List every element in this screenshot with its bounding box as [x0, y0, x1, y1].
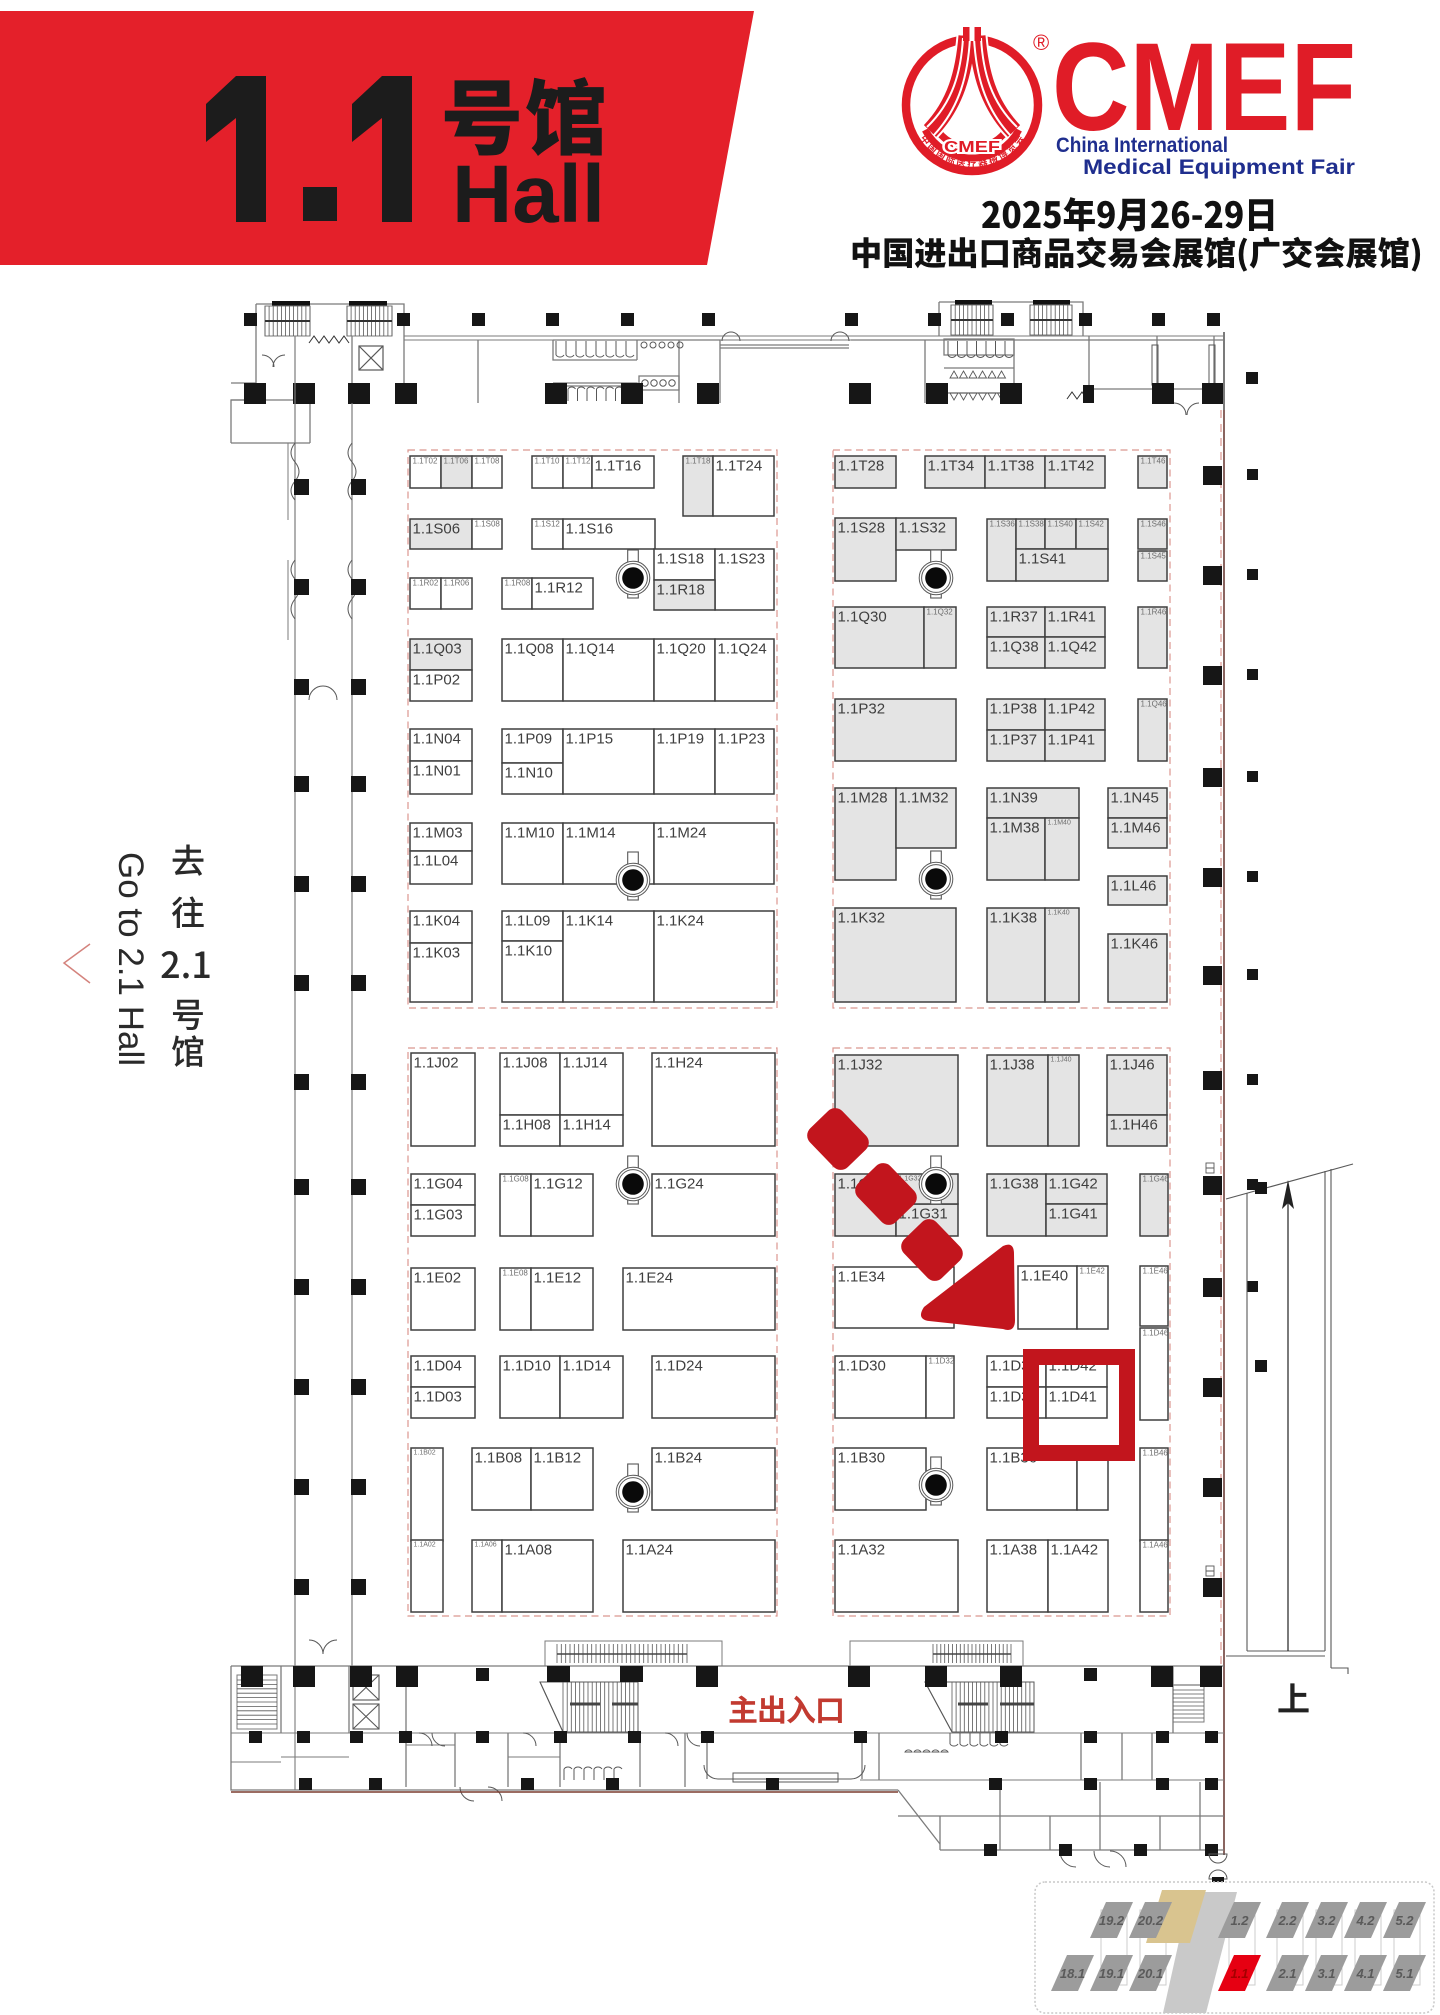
svg-text:1.1A08: 1.1A08 [505, 1541, 553, 1558]
svg-text:1.1G42: 1.1G42 [1049, 1175, 1098, 1192]
svg-text:1.1L04: 1.1L04 [413, 852, 459, 869]
svg-text:1.1P15: 1.1P15 [566, 730, 614, 747]
svg-text:1.1K04: 1.1K04 [413, 912, 461, 929]
svg-text:1.1J32: 1.1J32 [838, 1056, 883, 1073]
svg-text:1.1A02: 1.1A02 [414, 1542, 436, 1549]
svg-text:1.1T08: 1.1T08 [475, 457, 500, 466]
svg-text:1.1: 1.1 [1230, 1966, 1248, 1981]
svg-text:1.1B46: 1.1B46 [1143, 1449, 1169, 1458]
svg-text:1.1B30: 1.1B30 [838, 1449, 886, 1466]
svg-text:1.1M28: 1.1M28 [838, 789, 888, 806]
svg-text:1.1E34: 1.1E34 [838, 1268, 886, 1285]
svg-text:1.1R06: 1.1R06 [444, 579, 470, 588]
svg-text:1.1R37: 1.1R37 [990, 608, 1038, 625]
svg-text:1.1T42: 1.1T42 [1048, 457, 1095, 474]
svg-text:1.1Q46: 1.1Q46 [1141, 700, 1168, 709]
svg-text:1.1Q24: 1.1Q24 [718, 640, 767, 657]
svg-text:1.1P38: 1.1P38 [990, 700, 1038, 717]
svg-text:1.1S45: 1.1S45 [1141, 552, 1167, 561]
svg-text:1.1M32: 1.1M32 [899, 789, 949, 806]
svg-text:1.1G08: 1.1G08 [503, 1175, 530, 1184]
svg-text:1.1T38: 1.1T38 [988, 457, 1035, 474]
svg-text:1.1M38: 1.1M38 [990, 819, 1040, 836]
svg-text:1.1D41: 1.1D41 [1049, 1388, 1097, 1405]
svg-text:1.1A32: 1.1A32 [838, 1541, 886, 1558]
svg-text:1.1J46: 1.1J46 [1110, 1056, 1155, 1073]
svg-text:1.1K32: 1.1K32 [838, 909, 886, 926]
svg-text:1.1D24: 1.1D24 [655, 1357, 703, 1374]
svg-text:1.1K46: 1.1K46 [1111, 935, 1159, 952]
svg-text:19.2: 19.2 [1099, 1913, 1125, 1928]
svg-text:1.1H24: 1.1H24 [655, 1054, 703, 1071]
svg-text:1.1Q38: 1.1Q38 [990, 638, 1039, 655]
svg-text:18.1: 18.1 [1060, 1966, 1085, 1981]
svg-text:1.1A06: 1.1A06 [475, 1542, 497, 1549]
svg-text:1.1S41: 1.1S41 [1019, 550, 1067, 567]
svg-text:4.1: 4.1 [1355, 1966, 1374, 1981]
svg-text:1.1Q08: 1.1Q08 [505, 640, 554, 657]
svg-text:20.1: 20.1 [1137, 1966, 1163, 1981]
svg-text:1.1T16: 1.1T16 [595, 457, 642, 474]
svg-text:5.1: 5.1 [1395, 1966, 1413, 1981]
svg-text:Go to 2.1 Hall: Go to 2.1 Hall [111, 852, 150, 1066]
svg-text:1.1E24: 1.1E24 [626, 1269, 674, 1286]
svg-text:1.1K24: 1.1K24 [657, 912, 705, 929]
svg-text:1.1M10: 1.1M10 [505, 824, 555, 841]
svg-text:1.1K14: 1.1K14 [566, 912, 614, 929]
svg-text:1.1K10: 1.1K10 [505, 942, 553, 959]
svg-text:1.1H14: 1.1H14 [563, 1116, 611, 1133]
svg-text:Medical Equipment Fair: Medical Equipment Fair [1083, 156, 1355, 179]
svg-text:1.1S16: 1.1S16 [566, 520, 614, 537]
svg-text:China International: China International [1056, 134, 1228, 157]
svg-text:1.1S40: 1.1S40 [1048, 520, 1074, 529]
svg-text:1.1M40: 1.1M40 [1048, 820, 1071, 827]
svg-text:1.1D03: 1.1D03 [414, 1388, 462, 1405]
svg-text:1.1L09: 1.1L09 [505, 912, 551, 929]
svg-text:1.1S12: 1.1S12 [535, 520, 561, 529]
svg-text:1.1S46: 1.1S46 [1141, 520, 1167, 529]
svg-text:1.1T24: 1.1T24 [716, 457, 763, 474]
svg-text:1.1D04: 1.1D04 [414, 1357, 462, 1374]
svg-text:1.1D30: 1.1D30 [838, 1357, 886, 1374]
svg-text:1.1G38: 1.1G38 [990, 1175, 1039, 1192]
svg-text:1.1E08: 1.1E08 [503, 1269, 529, 1278]
svg-text:1.1S06: 1.1S06 [413, 520, 461, 537]
svg-text:1.1J40: 1.1J40 [1051, 1057, 1072, 1064]
svg-text:Hall: Hall [452, 149, 605, 240]
svg-text:2.2: 2.2 [1277, 1913, 1297, 1928]
svg-text:1.1R12: 1.1R12 [535, 579, 583, 596]
svg-text:1.1D14: 1.1D14 [563, 1357, 611, 1374]
svg-text:1.1P02: 1.1P02 [413, 671, 461, 688]
svg-text:1.1G04: 1.1G04 [414, 1175, 463, 1192]
svg-text:CMEF: CMEF [944, 139, 1000, 156]
svg-text:1.1R46: 1.1R46 [1141, 608, 1167, 617]
svg-text:1.1S42: 1.1S42 [1079, 520, 1105, 529]
svg-text:1.1J14: 1.1J14 [563, 1054, 608, 1071]
svg-text:1.1R18: 1.1R18 [657, 581, 705, 598]
svg-text:1.1K40: 1.1K40 [1048, 910, 1070, 917]
svg-text:1.1J38: 1.1J38 [990, 1056, 1035, 1073]
svg-text:1.1M14: 1.1M14 [566, 824, 616, 841]
svg-text:1.1E46: 1.1E46 [1143, 1267, 1169, 1276]
svg-text:1.1H46: 1.1H46 [1110, 1116, 1158, 1133]
svg-text:1.1T06: 1.1T06 [444, 457, 469, 466]
svg-text:1.1N39: 1.1N39 [990, 789, 1038, 806]
svg-text:1.1M24: 1.1M24 [657, 824, 707, 841]
svg-text:1.1T18: 1.1T18 [686, 457, 711, 466]
svg-text:1.1R41: 1.1R41 [1048, 608, 1096, 625]
svg-text:1.1G03: 1.1G03 [414, 1206, 463, 1223]
svg-text:1.1Q14: 1.1Q14 [566, 640, 615, 657]
svg-text:1.1A38: 1.1A38 [990, 1541, 1038, 1558]
svg-text:1.1P41: 1.1P41 [1048, 731, 1096, 748]
svg-text:1.1M46: 1.1M46 [1111, 819, 1161, 836]
svg-text:1.1D10: 1.1D10 [503, 1357, 551, 1374]
svg-text:1.1G12: 1.1G12 [534, 1175, 583, 1192]
svg-text:1.1L46: 1.1L46 [1111, 877, 1157, 894]
svg-text:1.1D46: 1.1D46 [1143, 1329, 1169, 1338]
svg-text:®: ® [1033, 30, 1049, 55]
svg-text:1.1J08: 1.1J08 [503, 1054, 548, 1071]
svg-text:20.2: 20.2 [1137, 1913, 1164, 1928]
svg-text:1.1S23: 1.1S23 [718, 550, 766, 567]
svg-text:1.1S36: 1.1S36 [990, 520, 1016, 529]
svg-text:1.1P42: 1.1P42 [1048, 700, 1096, 717]
svg-text:1.1N10: 1.1N10 [505, 764, 553, 781]
svg-text:1.1R02: 1.1R02 [413, 579, 439, 588]
svg-text:1.1J02: 1.1J02 [414, 1054, 459, 1071]
svg-text:1.1G24: 1.1G24 [655, 1175, 704, 1192]
svg-text:1.1G41: 1.1G41 [1049, 1205, 1098, 1222]
svg-text:1.1T34: 1.1T34 [928, 457, 975, 474]
svg-text:1.1P32: 1.1P32 [838, 700, 886, 717]
svg-text:19.1: 19.1 [1099, 1966, 1124, 1981]
svg-text:1.1Q30: 1.1Q30 [838, 608, 887, 625]
svg-text:1.1T02: 1.1T02 [413, 457, 438, 466]
svg-text:1.1T46: 1.1T46 [1141, 457, 1166, 466]
svg-text:1.1S18: 1.1S18 [657, 550, 705, 567]
svg-text:1.1D32: 1.1D32 [929, 1357, 955, 1366]
svg-text:1.2: 1.2 [1230, 1913, 1249, 1928]
svg-text:1.1R08: 1.1R08 [505, 579, 531, 588]
svg-text:1.1B02: 1.1B02 [414, 1450, 436, 1457]
svg-text:1.1A46: 1.1A46 [1143, 1541, 1169, 1550]
svg-text:1.1P09: 1.1P09 [505, 730, 553, 747]
svg-text:1.1T28: 1.1T28 [838, 457, 885, 474]
svg-text:1.1T10: 1.1T10 [535, 457, 560, 466]
svg-text:1.1S38: 1.1S38 [1019, 520, 1045, 529]
svg-text:1.1S28: 1.1S28 [838, 519, 886, 536]
svg-text:1.1P37: 1.1P37 [990, 731, 1038, 748]
svg-text:1.1E12: 1.1E12 [534, 1269, 582, 1286]
svg-text:1.1B24: 1.1B24 [655, 1449, 703, 1466]
svg-text:1.1Q32: 1.1Q32 [927, 608, 954, 617]
svg-text:1.1K03: 1.1K03 [413, 944, 461, 961]
svg-text:4.2: 4.2 [1355, 1913, 1375, 1928]
svg-text:1.1Q03: 1.1Q03 [413, 640, 462, 657]
svg-text:1.1S08: 1.1S08 [475, 520, 501, 529]
svg-text:1.1E42: 1.1E42 [1080, 1267, 1106, 1276]
svg-text:1.1Q42: 1.1Q42 [1048, 638, 1097, 655]
svg-text:1.1A42: 1.1A42 [1051, 1541, 1099, 1558]
svg-text:1.1K38: 1.1K38 [990, 909, 1038, 926]
svg-text:1.1H08: 1.1H08 [503, 1116, 551, 1133]
svg-text:1.1N01: 1.1N01 [413, 762, 461, 779]
svg-text:1.1N04: 1.1N04 [413, 730, 461, 747]
svg-text:1.1N45: 1.1N45 [1111, 789, 1159, 806]
svg-text:5.2: 5.2 [1395, 1913, 1414, 1928]
svg-text:3.1: 3.1 [1317, 1966, 1335, 1981]
svg-text:3.2: 3.2 [1317, 1913, 1336, 1928]
svg-text:1.1P19: 1.1P19 [657, 730, 705, 747]
svg-text:1.1Q20: 1.1Q20 [657, 640, 706, 657]
svg-text:1.1M03: 1.1M03 [413, 824, 463, 841]
svg-text:2.1: 2.1 [1277, 1966, 1296, 1981]
svg-text:1.1E02: 1.1E02 [414, 1269, 462, 1286]
svg-text:1.1T12: 1.1T12 [566, 457, 591, 466]
svg-text:1.1E40: 1.1E40 [1021, 1267, 1069, 1284]
svg-text:1.1G46: 1.1G46 [1143, 1175, 1170, 1184]
svg-text:1.1S32: 1.1S32 [899, 519, 947, 536]
svg-text:1.1B12: 1.1B12 [534, 1449, 582, 1466]
svg-text:1.1A24: 1.1A24 [626, 1541, 674, 1558]
svg-text:1.1B08: 1.1B08 [475, 1449, 523, 1466]
svg-text:1.1P23: 1.1P23 [718, 730, 766, 747]
